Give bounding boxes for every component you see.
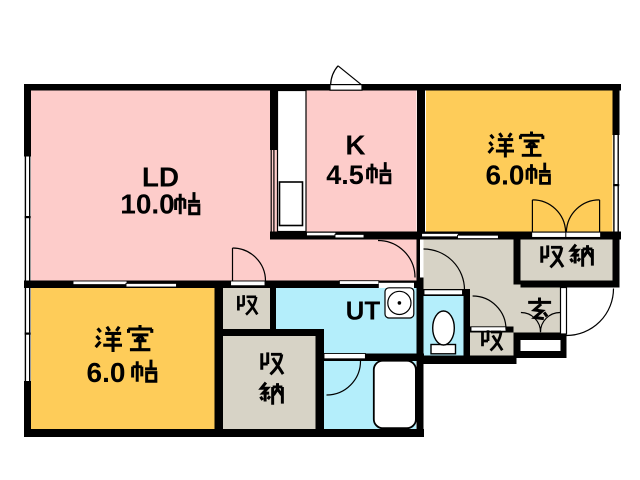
svg-text:6.0: 6.0 bbox=[486, 160, 525, 191]
svg-text:10.0: 10.0 bbox=[120, 189, 175, 220]
svg-text:UT: UT bbox=[346, 296, 381, 326]
svg-text:4.5: 4.5 bbox=[326, 160, 364, 190]
svg-text:6.0: 6.0 bbox=[87, 357, 126, 388]
svg-text:K: K bbox=[345, 130, 365, 161]
